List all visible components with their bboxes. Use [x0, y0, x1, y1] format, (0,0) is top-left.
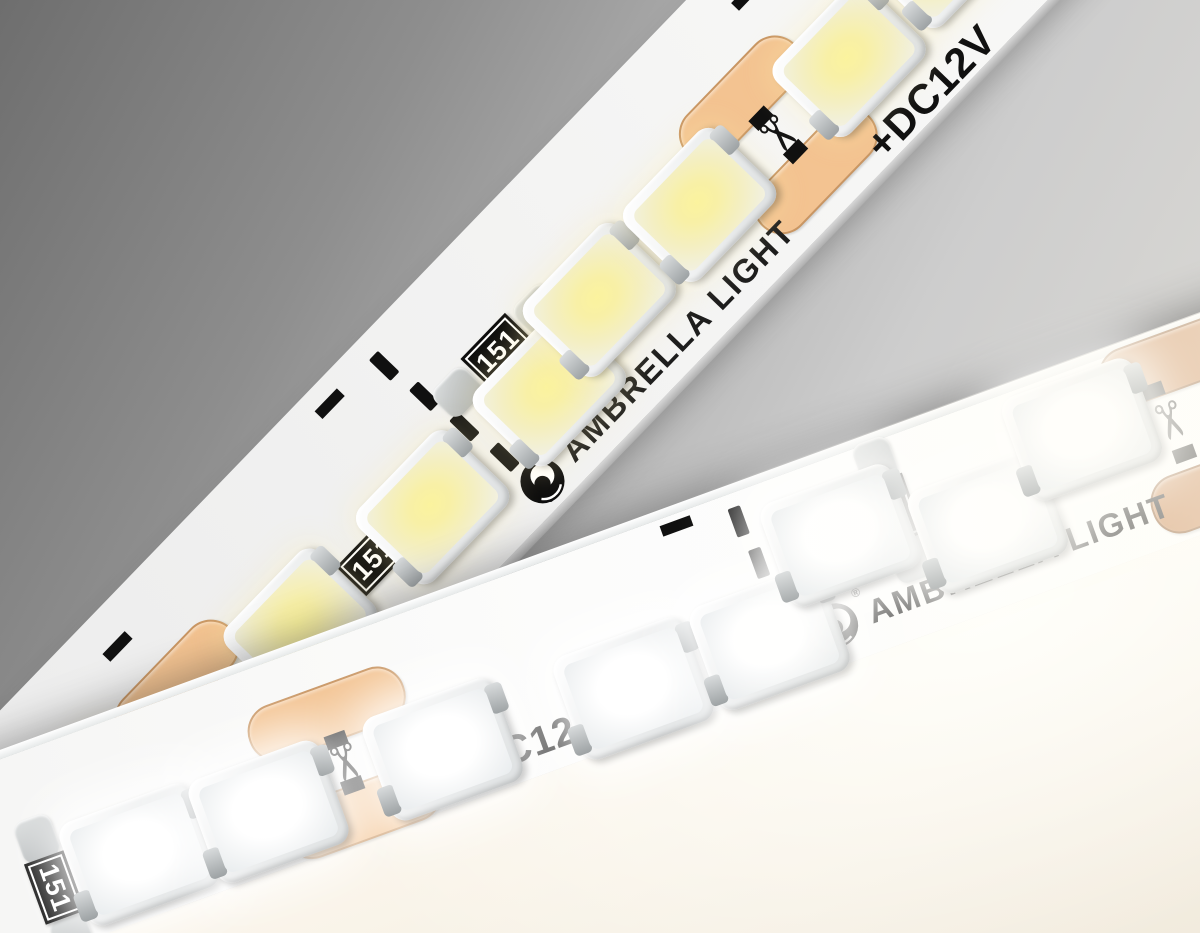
cut-dash-line	[727, 505, 749, 538]
cut-dash-line	[748, 547, 770, 580]
minus-mark	[731, 0, 761, 11]
cut-dash-line	[369, 351, 400, 381]
minus-mark	[102, 631, 132, 662]
product-photo: ✂151151®AMBRELLA LIGHT✂+DC12V 151✂+DC12V…	[0, 0, 1200, 933]
cut-mark	[1172, 444, 1197, 465]
minus-mark	[660, 515, 694, 536]
minus-mark	[315, 388, 345, 419]
